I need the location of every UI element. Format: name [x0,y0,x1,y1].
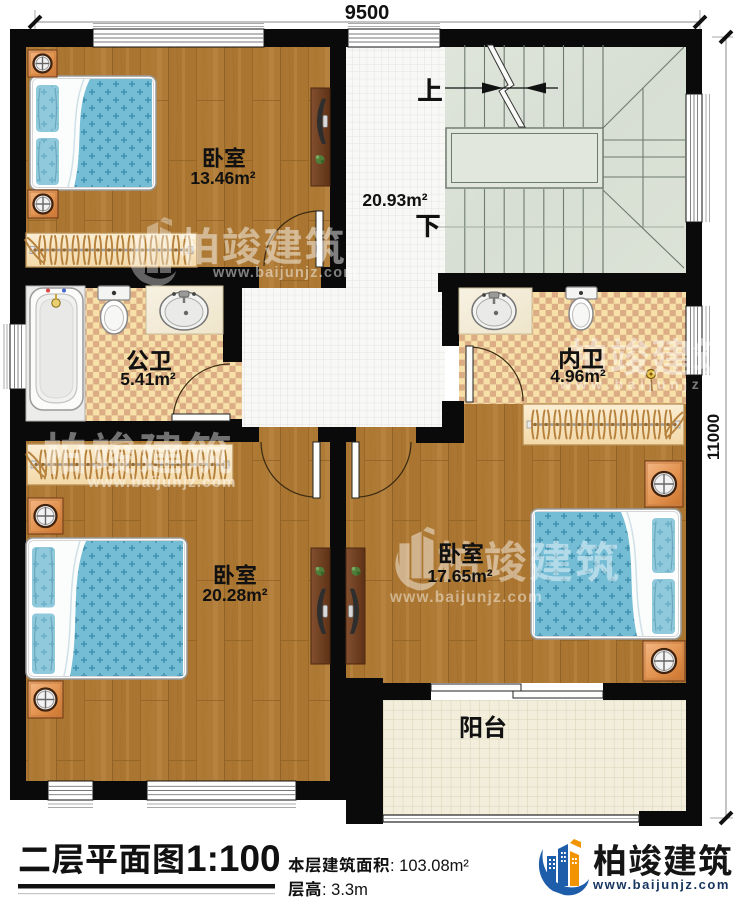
svg-text:5.41m²: 5.41m² [120,369,176,389]
svg-text:20.28m²: 20.28m² [202,585,267,605]
svg-text:9500: 9500 [345,2,390,24]
svg-text:www.baijunjz.com: www.baijunjz.com [212,265,357,281]
svg-text:4.96m²: 4.96m² [550,366,606,386]
svg-text:: 3.3m: : 3.3m [322,881,368,899]
svg-text:www.baijunjz.com: www.baijunjz.com [389,589,543,606]
svg-text:www.baijunjz.com: www.baijunjz.com [87,474,237,491]
svg-text:1:100: 1:100 [186,838,281,879]
svg-text:17.65m²: 17.65m² [427,566,492,586]
svg-text:www.baijunjz.com: www.baijunjz.com [592,877,730,892]
svg-text:11000: 11000 [704,414,723,460]
svg-text:13.46m²: 13.46m² [190,168,255,188]
svg-text:: 103.08m²: : 103.08m² [390,857,469,875]
svg-text:20.93m²: 20.93m² [362,190,427,210]
